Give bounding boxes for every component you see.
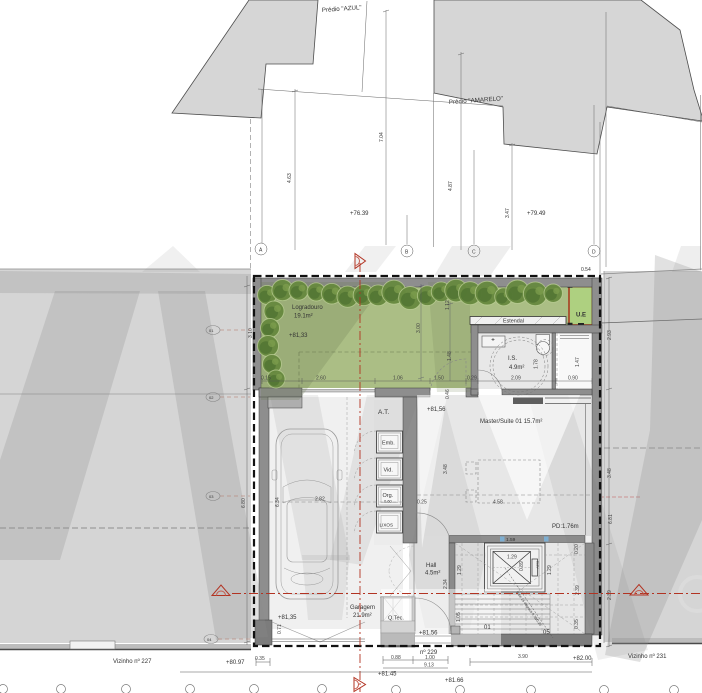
svg-text:Logradouro: Logradouro xyxy=(292,305,323,311)
svg-text:+81,35: +81,35 xyxy=(278,615,297,621)
svg-text:1.05: 1.05 xyxy=(456,612,462,622)
svg-text:0.35: 0.35 xyxy=(574,619,580,629)
svg-text:Garagem: Garagem xyxy=(350,605,375,611)
svg-text:3.48: 3.48 xyxy=(607,468,613,478)
svg-text:Vizinho nº 231: Vizinho nº 231 xyxy=(628,653,667,660)
svg-text:2.39: 2.39 xyxy=(607,590,613,600)
svg-text:0.35: 0.35 xyxy=(255,656,265,662)
svg-text:1.50: 1.50 xyxy=(434,376,444,382)
svg-text:A.T.: A.T. xyxy=(378,409,389,416)
svg-text:2.09: 2.09 xyxy=(511,376,521,382)
svg-text:4.9m²: 4.9m² xyxy=(509,365,524,371)
svg-text:Vizinho nº 227: Vizinho nº 227 xyxy=(113,658,152,665)
svg-text:+81,56: +81,56 xyxy=(419,631,438,637)
svg-text:ELEV: ELEV xyxy=(536,561,540,569)
svg-text:0.90: 0.90 xyxy=(568,376,578,382)
svg-text:6.80: 6.80 xyxy=(241,498,247,508)
svg-text:6.34: 6.34 xyxy=(275,497,281,507)
svg-text:+76.39: +76.39 xyxy=(350,211,369,217)
svg-text:0.89: 0.89 xyxy=(519,561,525,571)
svg-text:4.5m²: 4.5m² xyxy=(425,571,440,577)
svg-text:Vid.: Vid. xyxy=(384,468,394,474)
svg-text:0.20: 0.20 xyxy=(574,544,580,554)
svg-text:Master/Suite 01 15.7m²: Master/Suite 01 15.7m² xyxy=(480,419,542,425)
svg-text:3.90: 3.90 xyxy=(518,654,528,660)
svg-text:+81,56: +81,56 xyxy=(427,407,446,413)
svg-text:1.48: 1.48 xyxy=(447,351,453,361)
svg-text:+81.66: +81.66 xyxy=(445,678,464,684)
svg-text:2.93: 2.93 xyxy=(607,330,613,340)
svg-text:PD:1.76m: PD:1.76m xyxy=(552,524,579,530)
svg-text:1.06: 1.06 xyxy=(393,376,403,382)
svg-text:+81,33: +81,33 xyxy=(289,333,308,339)
svg-text:0.25: 0.25 xyxy=(417,500,427,506)
svg-text:19.1m²: 19.1m² xyxy=(294,314,313,320)
svg-text:04: 04 xyxy=(207,637,212,642)
svg-text:9.13: 9.13 xyxy=(424,663,434,669)
svg-text:3.48: 3.48 xyxy=(443,464,449,474)
svg-text:1.29: 1.29 xyxy=(547,565,553,575)
svg-text:D: D xyxy=(592,250,596,256)
svg-text:2.82: 2.82 xyxy=(315,497,325,503)
svg-text:05: 05 xyxy=(543,630,550,636)
svg-text:0.29: 0.29 xyxy=(467,376,477,382)
svg-text:Hall: Hall xyxy=(426,563,436,569)
svg-text:1.59: 1.59 xyxy=(506,537,516,543)
svg-text:6.81: 6.81 xyxy=(608,514,614,524)
svg-text:0.88: 0.88 xyxy=(391,655,401,661)
svg-text:02: 02 xyxy=(209,395,214,400)
svg-text:I.S.: I.S. xyxy=(508,356,517,362)
svg-text:03: 03 xyxy=(209,494,214,499)
svg-text:0.54: 0.54 xyxy=(581,267,591,273)
svg-text:01: 01 xyxy=(484,625,491,631)
svg-text:0.15: 0.15 xyxy=(261,376,271,382)
svg-text:0.60: 0.60 xyxy=(384,499,393,504)
svg-text:3.47: 3.47 xyxy=(505,208,511,218)
svg-text:U.E: U.E xyxy=(576,313,586,319)
svg-text:7.04: 7.04 xyxy=(379,132,385,142)
svg-text:+82.00: +82.00 xyxy=(573,656,592,662)
svg-text:2.60: 2.60 xyxy=(316,376,326,382)
svg-text:+81.45: +81.45 xyxy=(378,672,397,678)
svg-text:1.00: 1.00 xyxy=(425,655,435,661)
svg-text:0.71: 0.71 xyxy=(277,624,283,634)
svg-text:1.78: 1.78 xyxy=(534,359,540,369)
svg-text:3.00: 3.00 xyxy=(416,323,422,333)
svg-text:1.29: 1.29 xyxy=(507,555,517,561)
svg-text:1.12: 1.12 xyxy=(445,300,451,310)
svg-text:21.9m²: 21.9m² xyxy=(353,613,372,619)
svg-text:Q.Tec.: Q.Tec. xyxy=(388,616,404,622)
svg-text:1.47: 1.47 xyxy=(575,357,581,367)
svg-text:LIXOS: LIXOS xyxy=(380,523,394,528)
svg-text:2.34: 2.34 xyxy=(443,579,449,589)
svg-text:4.87: 4.87 xyxy=(448,181,454,191)
svg-text:4.58: 4.58 xyxy=(493,500,503,506)
svg-text:+80.97: +80.97 xyxy=(226,660,245,666)
svg-text:0.46: 0.46 xyxy=(445,389,451,399)
svg-text:01: 01 xyxy=(209,328,214,333)
svg-text:Emb.: Emb. xyxy=(382,441,395,447)
svg-text:4.63: 4.63 xyxy=(287,173,293,183)
svg-text:Estendal: Estendal xyxy=(503,318,524,324)
svg-text:1.29: 1.29 xyxy=(457,565,463,575)
svg-text:+79.49: +79.49 xyxy=(527,211,546,217)
